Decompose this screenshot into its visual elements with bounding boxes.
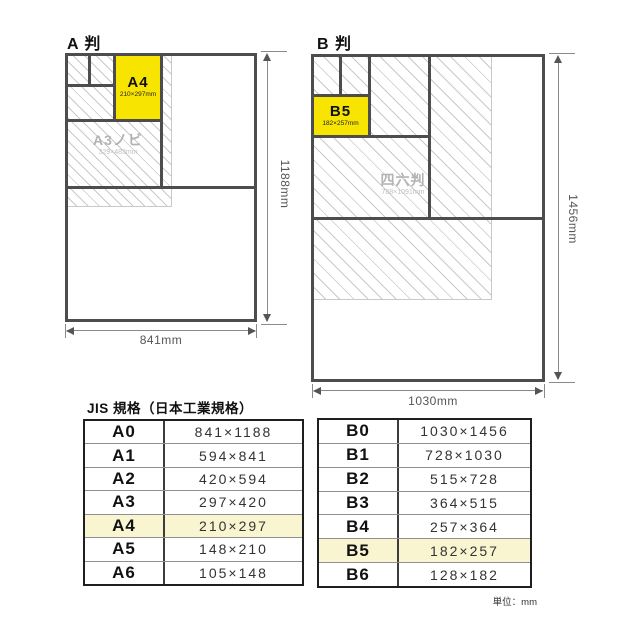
table-row: B1728×1030 xyxy=(319,444,530,468)
a-width-dim-line xyxy=(67,330,255,331)
table-row-highlighted-b5: B5182×257 xyxy=(319,539,530,563)
size-label-cell: A4 xyxy=(85,515,165,537)
table-row: A5148×210 xyxy=(85,538,302,561)
b-height-ext-tick-bottom xyxy=(549,382,575,383)
size-value-cell: 297×420 xyxy=(165,491,302,513)
size-label-cell: B6 xyxy=(319,563,399,586)
b-width-ext-tick-right xyxy=(544,384,545,398)
a3nobi-ghost-label: A3ノビ 329×483mm xyxy=(70,133,166,156)
table-row: B01030×1456 xyxy=(319,420,530,444)
jis-heading: JIS 規格（日本工業規格） xyxy=(87,397,253,417)
table-row: A3297×420 xyxy=(85,491,302,514)
size-label-cell: B4 xyxy=(319,515,399,538)
b3-cut-line xyxy=(311,135,431,138)
size-value-cell: 105×148 xyxy=(165,562,302,584)
a-height-arrow-down-icon xyxy=(263,314,271,322)
a-width-arrow-right-icon xyxy=(248,327,256,335)
size-value-cell: 182×257 xyxy=(399,539,530,562)
paper-size-infographic: A 判 A4 210×297mm A3ノビ 329×483mm 1188mm 8… xyxy=(0,0,640,640)
table-row: A1594×841 xyxy=(85,444,302,467)
table-row: B4257×364 xyxy=(319,515,530,539)
size-value-cell: 841×1188 xyxy=(165,421,302,443)
size-label-cell: A0 xyxy=(85,421,165,443)
a-height-ext-tick-bottom xyxy=(261,324,287,325)
b-series-title: B 判 xyxy=(317,30,352,54)
size-label-cell: B5 xyxy=(319,539,399,562)
table-row: B2515×728 xyxy=(319,468,530,492)
a-series-title: A 判 xyxy=(67,30,101,54)
size-label-cell: A2 xyxy=(85,468,165,490)
b-size-table: B01030×1456 B1728×1030 B2515×728 B3364×5… xyxy=(317,418,532,588)
a-height-dim-line xyxy=(267,55,268,321)
b-height-dim-line xyxy=(558,57,559,379)
b-height-arrow-up-icon xyxy=(554,55,562,63)
table-row: B3364×515 xyxy=(319,492,530,516)
size-value-cell: 128×182 xyxy=(399,563,530,586)
table-row-highlighted-a4: A4210×297 xyxy=(85,515,302,538)
a-height-dim-label: 1188mm xyxy=(278,149,292,219)
b-height-ext-tick-top xyxy=(549,53,575,54)
size-value-cell: 1030×1456 xyxy=(399,420,530,443)
b-width-arrow-right-icon xyxy=(535,387,543,395)
size-label-cell: B3 xyxy=(319,492,399,515)
size-value-cell: 515×728 xyxy=(399,468,530,491)
a-height-arrow-up-icon xyxy=(263,53,271,61)
shiroku-size: 788×1091mm xyxy=(357,189,449,196)
size-value-cell: 148×210 xyxy=(165,538,302,560)
size-value-cell: 420×594 xyxy=(165,468,302,490)
a3nobi-size: 329×483mm xyxy=(70,149,166,156)
size-value-cell: 594×841 xyxy=(165,444,302,466)
size-value-cell: 364×515 xyxy=(399,492,530,515)
a-width-ext-tick-right xyxy=(256,324,257,338)
a6-cut-line xyxy=(88,53,91,87)
a-width-dim-label: 841mm xyxy=(111,333,211,347)
shiroku-ghost-label: 四六判 788×1091mm xyxy=(357,173,449,196)
b-height-arrow-down-icon xyxy=(554,372,562,380)
table-row: A2420×594 xyxy=(85,468,302,491)
unit-note: 単位：mm xyxy=(437,594,537,608)
table-row: B6128×182 xyxy=(319,563,530,586)
size-label-cell: A6 xyxy=(85,562,165,584)
size-label-cell: A5 xyxy=(85,538,165,560)
a-height-ext-tick-top xyxy=(261,51,287,52)
shiroku-name: 四六判 xyxy=(357,173,449,187)
b-width-arrow-left-icon xyxy=(313,387,321,395)
size-label-cell: A1 xyxy=(85,444,165,466)
table-row: A6105×148 xyxy=(85,562,302,584)
table-row: A0841×1188 xyxy=(85,421,302,444)
size-value-cell: 728×1030 xyxy=(399,444,530,467)
a3nobi-name: A3ノビ xyxy=(70,133,166,147)
size-value-cell: 210×297 xyxy=(165,515,302,537)
b6-cut-line xyxy=(339,54,342,97)
size-label-cell: B1 xyxy=(319,444,399,467)
size-label-cell: B2 xyxy=(319,468,399,491)
a-size-table: A0841×1188 A1594×841 A2420×594 A3297×420… xyxy=(83,419,304,586)
b-width-dim-line xyxy=(314,390,543,391)
b-height-dim-label: 1456mm xyxy=(566,184,580,254)
size-label-cell: A3 xyxy=(85,491,165,513)
b-width-dim-label: 1030mm xyxy=(383,394,483,408)
size-value-cell: 257×364 xyxy=(399,515,530,538)
a-width-arrow-left-icon xyxy=(66,327,74,335)
size-label-cell: B0 xyxy=(319,420,399,443)
a4-cut-line xyxy=(113,53,116,122)
